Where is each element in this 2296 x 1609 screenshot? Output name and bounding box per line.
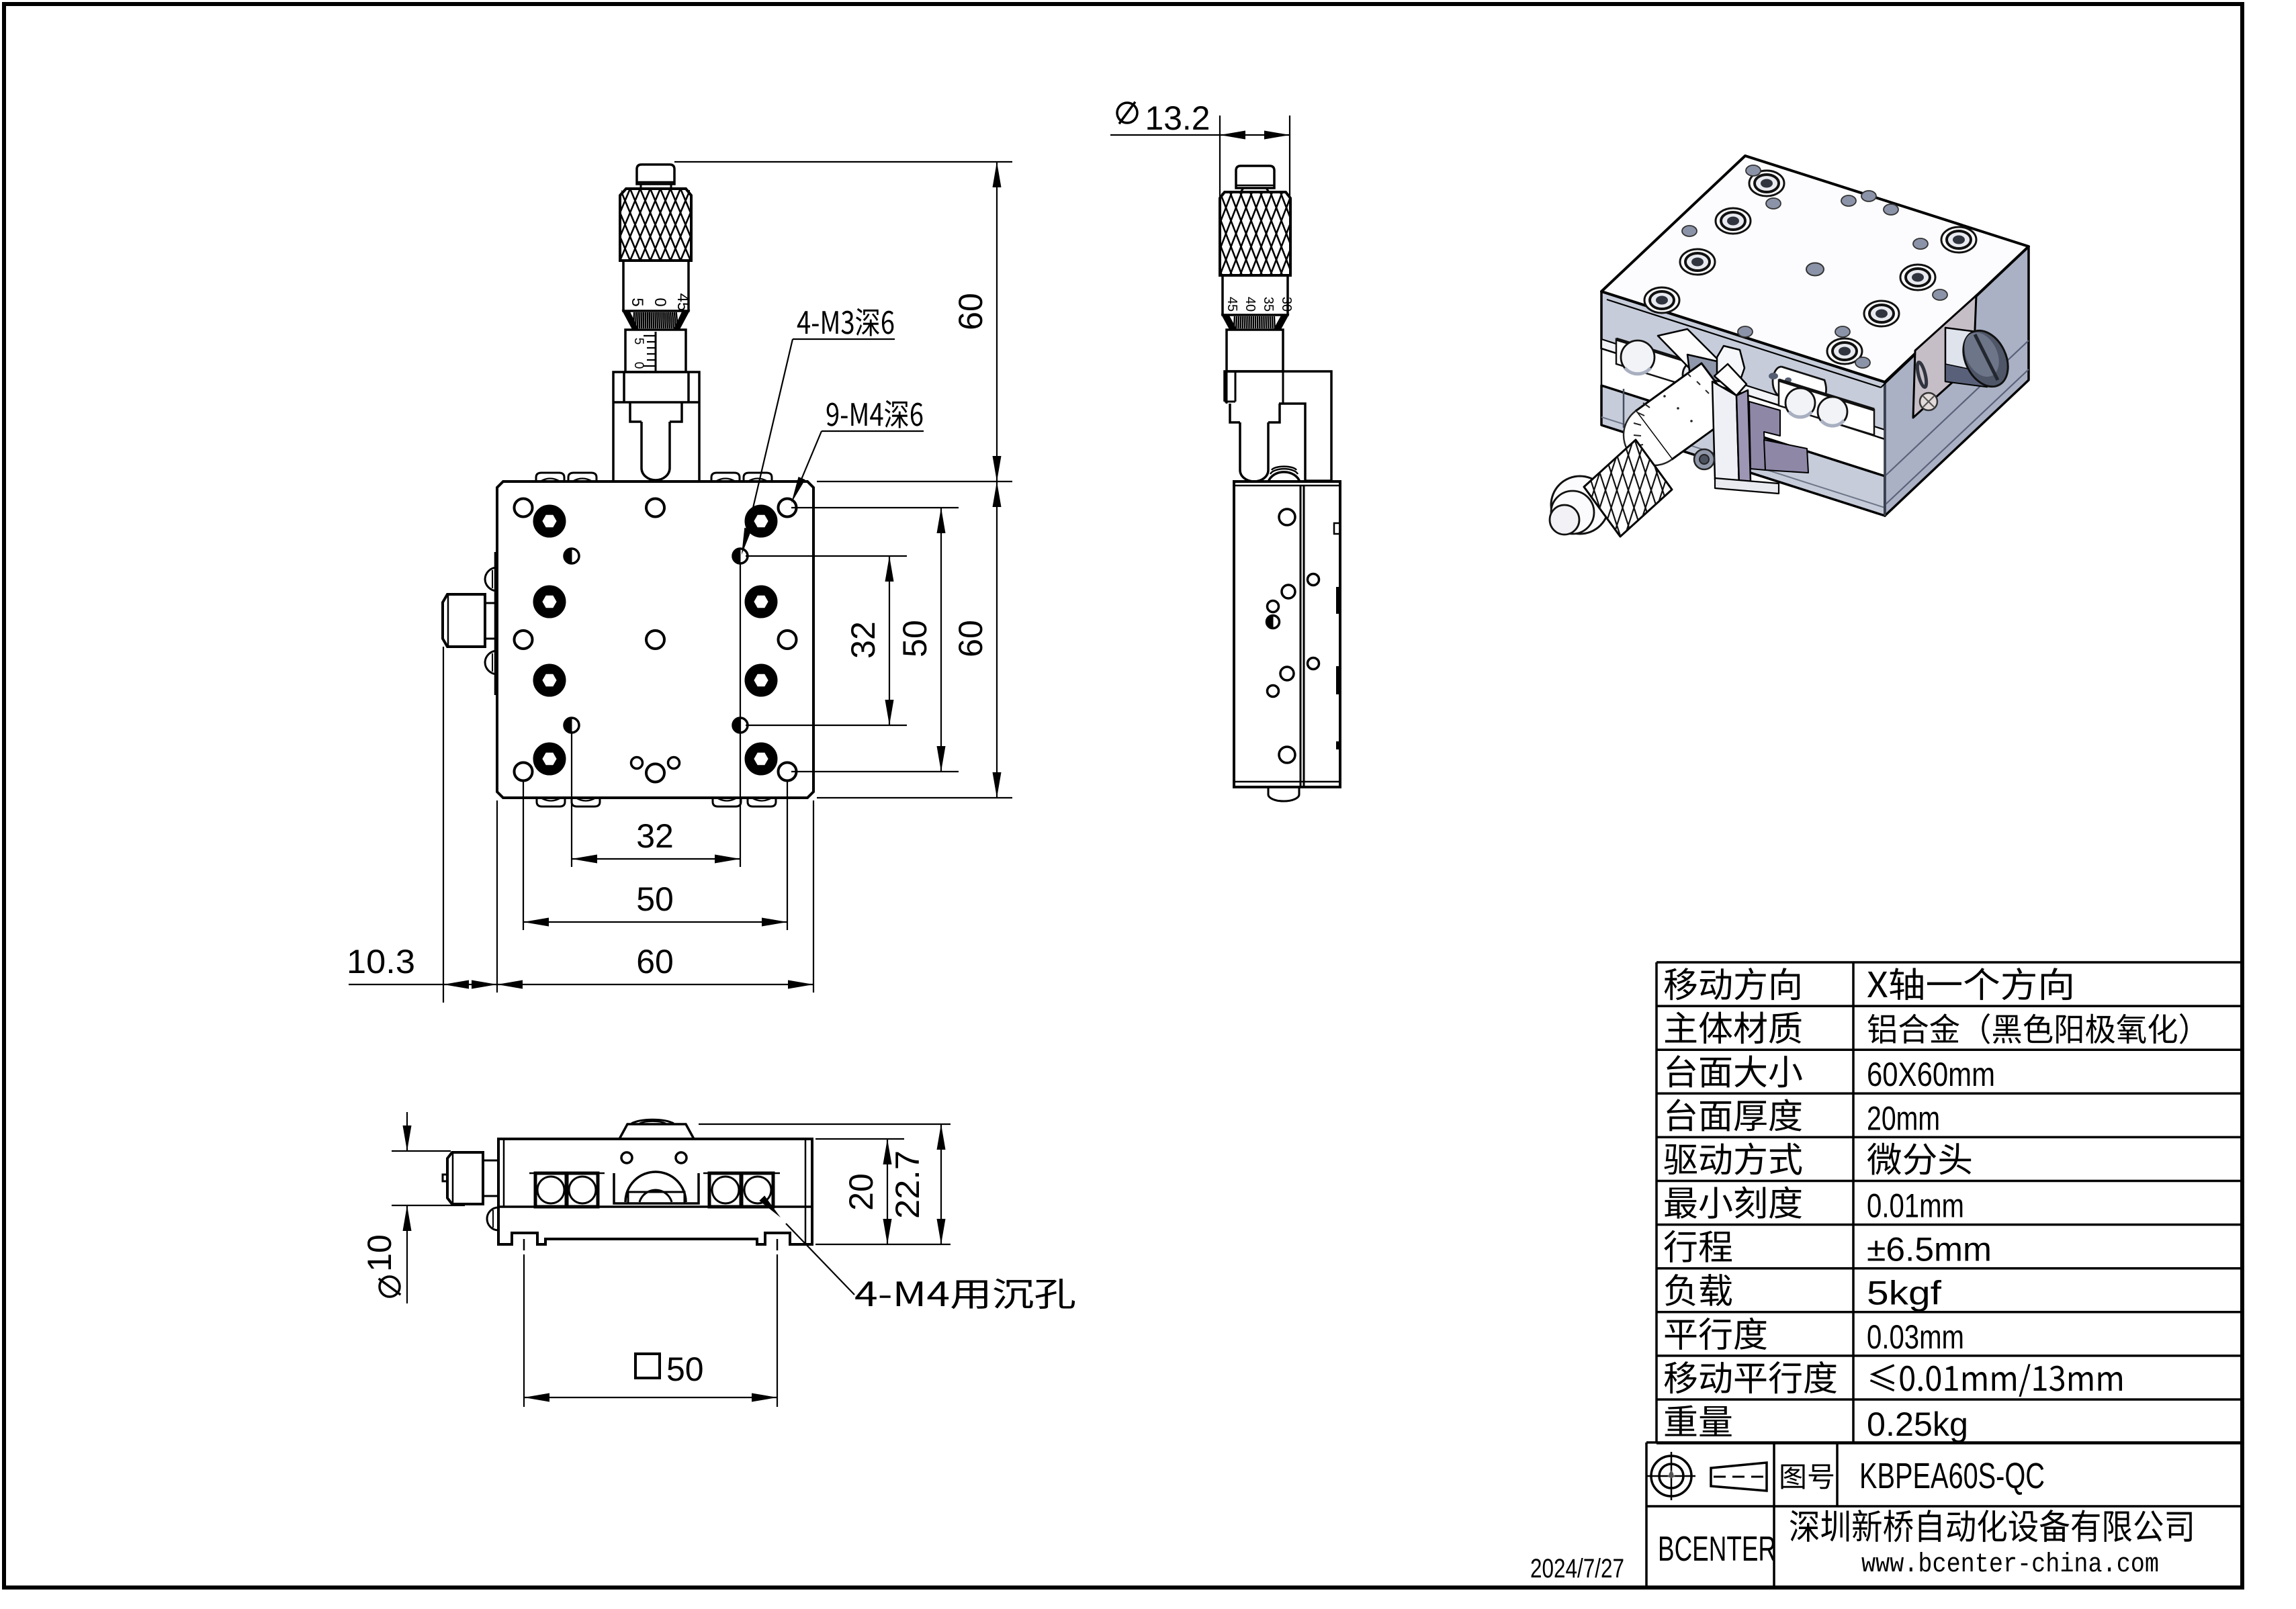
svg-text:0: 0 <box>631 362 646 369</box>
svg-text:BCENTER: BCENTER <box>1658 1530 1776 1569</box>
svg-text:45: 45 <box>674 293 692 312</box>
svg-text:45: 45 <box>1225 297 1239 312</box>
svg-text:40: 40 <box>1243 297 1257 312</box>
svg-text:2024/7/27: 2024/7/27 <box>1530 1554 1624 1583</box>
svg-text:5: 5 <box>631 338 646 345</box>
svg-text:10.3: 10.3 <box>347 943 415 980</box>
svg-text:0.01mm: 0.01mm <box>1867 1187 1964 1225</box>
svg-text:13.2: 13.2 <box>1145 99 1210 137</box>
svg-text:0.03mm: 0.03mm <box>1867 1318 1964 1356</box>
svg-text:35: 35 <box>1261 297 1276 312</box>
svg-text:0.25kg: 0.25kg <box>1867 1406 1968 1443</box>
svg-text:22.7: 22.7 <box>889 1150 926 1219</box>
svg-text:30: 30 <box>1279 297 1294 312</box>
svg-text:10: 10 <box>361 1234 398 1272</box>
svg-text:32: 32 <box>844 621 882 659</box>
svg-text:5: 5 <box>628 297 646 306</box>
svg-text:20mm: 20mm <box>1867 1099 1940 1137</box>
svg-text:50: 50 <box>636 880 674 918</box>
svg-text:www.bcenter-china.com: www.bcenter-china.com <box>1861 1550 2159 1580</box>
svg-text:60: 60 <box>636 943 674 980</box>
svg-text:50: 50 <box>666 1350 704 1388</box>
svg-text:60: 60 <box>952 620 989 657</box>
svg-text:50: 50 <box>896 620 934 657</box>
svg-text:0: 0 <box>651 297 669 306</box>
svg-text:32: 32 <box>636 817 674 855</box>
svg-text:KBPEA60S-QC: KBPEA60S-QC <box>1859 1456 2045 1496</box>
svg-text:5kgf: 5kgf <box>1867 1275 1941 1312</box>
svg-text:60: 60 <box>952 293 989 330</box>
svg-text:±6.5mm: ±6.5mm <box>1867 1231 1992 1269</box>
svg-text:20: 20 <box>842 1173 880 1211</box>
svg-text:60X60mm: 60X60mm <box>1867 1056 1995 1093</box>
